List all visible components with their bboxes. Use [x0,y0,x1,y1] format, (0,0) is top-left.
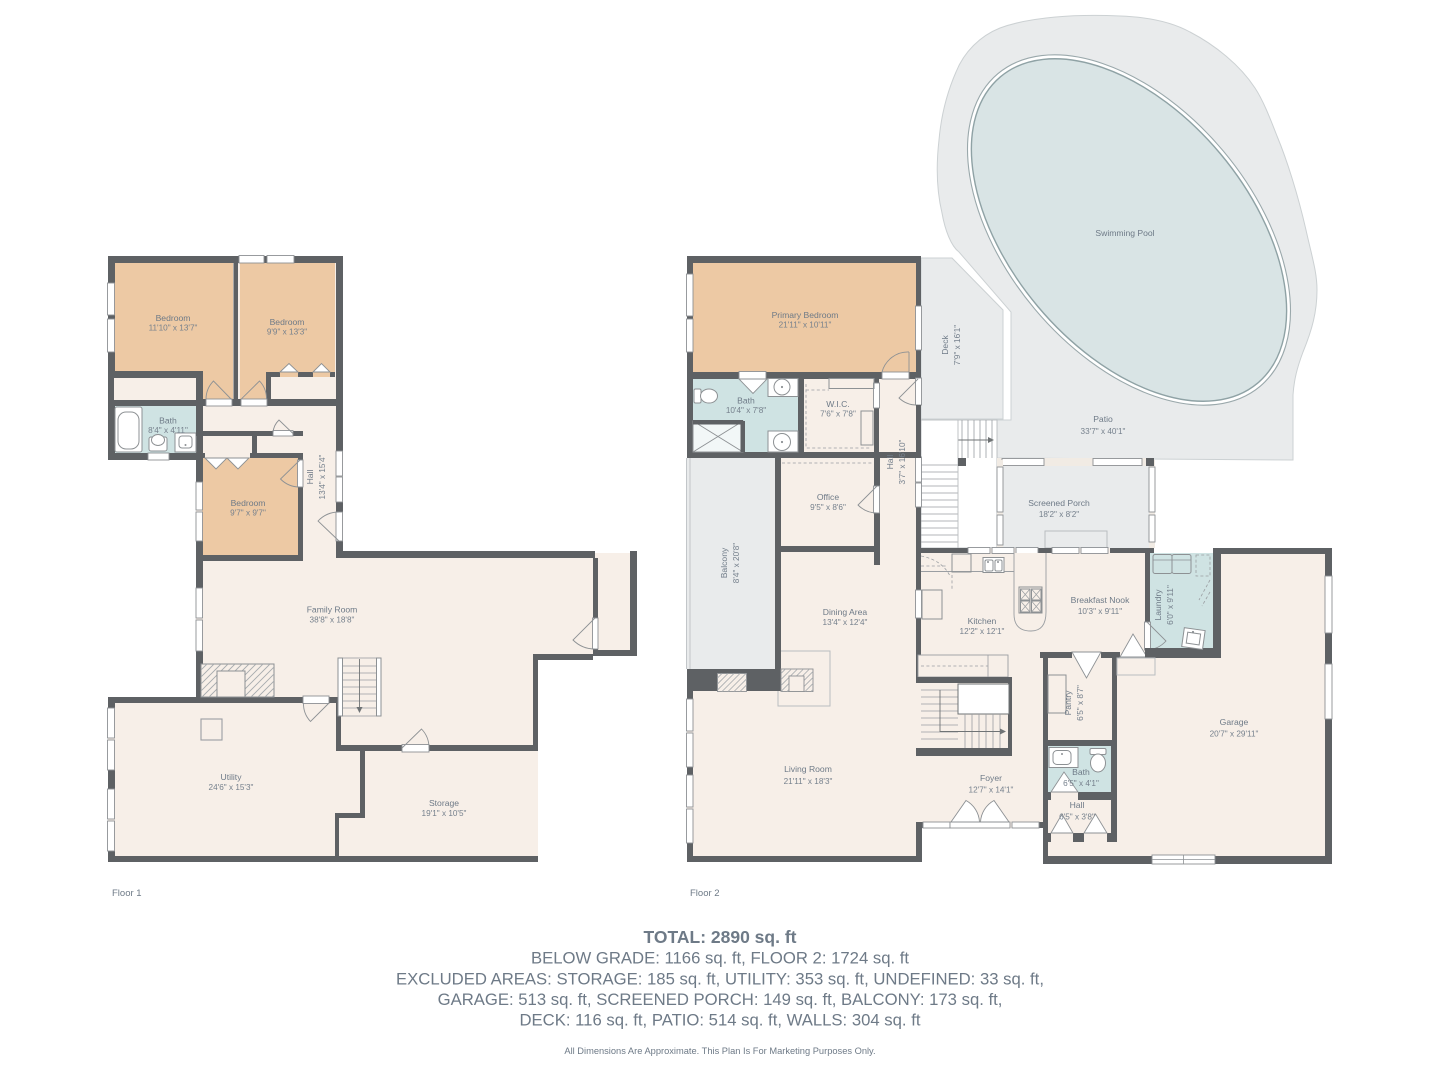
svg-text:Bath: Bath [1072,767,1090,777]
svg-text:Bedroom: Bedroom [231,498,266,508]
svg-text:20'7" x 29'11": 20'7" x 29'11" [1210,730,1259,739]
svg-text:Hall: Hall [885,455,895,470]
svg-text:Hall: Hall [1070,800,1085,810]
svg-text:6'0" x 9'11": 6'0" x 9'11" [1166,585,1175,625]
svg-text:12'2" x 12'1": 12'2" x 12'1" [960,627,1005,636]
svg-text:Hall: Hall [305,470,315,485]
svg-text:Storage: Storage [429,798,459,808]
svg-text:Utility: Utility [220,772,242,782]
svg-text:EXCLUDED AREAS: STORAGE: 185 s: EXCLUDED AREAS: STORAGE: 185 sq. ft, UTI… [396,970,1044,989]
svg-text:Dining Area: Dining Area [823,607,868,617]
svg-text:6'5" x 8'7": 6'5" x 8'7" [1076,685,1085,721]
svg-text:Family Room: Family Room [307,605,358,615]
svg-text:Bedroom: Bedroom [270,317,305,327]
svg-text:13'4" x 12'4": 13'4" x 12'4" [823,618,868,627]
svg-text:6'5" x 4'1": 6'5" x 4'1" [1063,779,1099,788]
svg-text:Garage: Garage [1220,717,1249,727]
svg-text:W.I.C.: W.I.C. [826,399,849,409]
svg-text:3'7" x 16'10": 3'7" x 16'10" [898,439,907,484]
svg-text:Foyer: Foyer [980,773,1002,783]
svg-text:10'3" x 9'11": 10'3" x 9'11" [1078,607,1122,616]
svg-text:21'11" x 18'3": 21'11" x 18'3" [784,777,833,786]
svg-text:Primary Bedroom: Primary Bedroom [772,310,839,320]
svg-text:Bedroom: Bedroom [156,313,191,323]
svg-text:Living Room: Living Room [784,764,832,774]
svg-text:Floor 1: Floor 1 [112,888,142,899]
svg-text:9'7" x 9'7": 9'7" x 9'7" [230,509,266,518]
svg-text:Breakfast Nook: Breakfast Nook [1071,595,1130,605]
svg-text:Deck: Deck [940,335,950,355]
svg-text:Swimming Pool: Swimming Pool [1095,228,1154,238]
svg-text:TOTAL: 2890 sq. ft: TOTAL: 2890 sq. ft [644,927,797,947]
svg-text:DECK: 116 sq. ft, PATIO: 514 s: DECK: 116 sq. ft, PATIO: 514 sq. ft, WAL… [520,1011,921,1030]
svg-text:Screened Porch: Screened Porch [1028,498,1090,508]
svg-text:All Dimensions Are Approximate: All Dimensions Are Approximate. This Pla… [564,1046,875,1056]
svg-text:Balcony: Balcony [719,547,729,578]
svg-text:Office: Office [817,492,840,502]
svg-text:GARAGE: 513 sq. ft, SCREENED P: GARAGE: 513 sq. ft, SCREENED PORCH: 149 … [438,990,1003,1009]
svg-text:19'1" x 10'5": 19'1" x 10'5" [422,809,467,818]
svg-text:18'2" x 8'2": 18'2" x 8'2" [1039,510,1079,519]
svg-text:Floor 2: Floor 2 [690,888,720,899]
svg-text:13'4" x 15'4": 13'4" x 15'4" [318,454,327,499]
svg-text:12'7" x 14'1": 12'7" x 14'1" [969,786,1014,795]
svg-text:6'5" x 3'8": 6'5" x 3'8" [1059,813,1095,822]
svg-text:24'6" x 15'3": 24'6" x 15'3" [209,783,254,792]
svg-text:9'5" x 8'6": 9'5" x 8'6" [810,503,846,512]
svg-text:Pantry: Pantry [1063,690,1073,716]
svg-text:Bath: Bath [159,416,177,426]
svg-text:33'7" x 40'1": 33'7" x 40'1" [1081,427,1126,436]
svg-text:7'9" x 16'1": 7'9" x 16'1" [953,325,962,365]
svg-text:Laundry: Laundry [1153,589,1163,621]
svg-text:BELOW GRADE: 1166 sq. ft, FLOO: BELOW GRADE: 1166 sq. ft, FLOOR 2: 1724 … [531,949,909,968]
svg-text:10'4" x 7'8": 10'4" x 7'8" [726,406,766,415]
svg-text:8'4" x 20'8": 8'4" x 20'8" [732,543,741,583]
svg-text:Bath: Bath [737,396,755,406]
svg-text:11'10" x 13'7": 11'10" x 13'7" [149,324,198,333]
svg-text:38'8" x 18'8": 38'8" x 18'8" [310,616,355,625]
svg-text:7'6" x 7'8": 7'6" x 7'8" [820,410,856,419]
svg-text:9'9" x 13'3": 9'9" x 13'3" [267,328,307,337]
svg-text:8'4" x 4'11": 8'4" x 4'11" [148,426,188,435]
svg-text:21'11" x 10'11": 21'11" x 10'11" [779,321,832,330]
svg-text:Kitchen: Kitchen [968,616,997,626]
svg-text:Patio: Patio [1093,414,1113,424]
